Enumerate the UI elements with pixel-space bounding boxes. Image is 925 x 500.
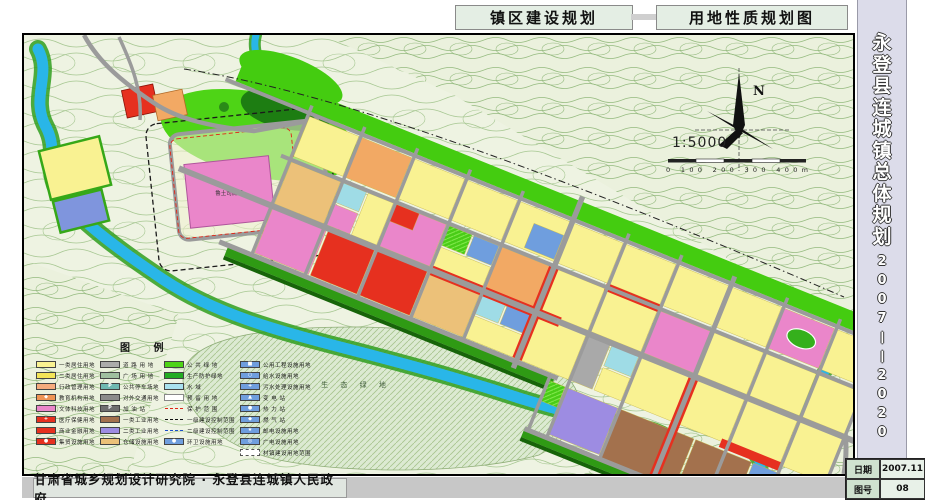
legend-swatch xyxy=(36,383,56,390)
legend-item: +污水处理设施用地 xyxy=(240,381,311,392)
scale-text: 1:5000 xyxy=(672,135,727,151)
legend-swatch xyxy=(164,361,184,368)
legend-swatch xyxy=(164,427,184,434)
legend-label: 一类工业用地 xyxy=(123,416,159,424)
sidebar-title: 永登县连城镇总体规划 xyxy=(858,0,906,248)
legend-item: 村镇建设用地范围 xyxy=(240,447,311,458)
legend-swatch xyxy=(100,438,120,445)
legend-swatch xyxy=(36,361,56,368)
sidebar-title-char: 县 xyxy=(858,76,906,98)
legend-swatch xyxy=(36,405,56,412)
legend-label: 二类居住用地 xyxy=(59,372,95,380)
legend-item: 道 路 用 地 xyxy=(100,359,159,370)
legend-swatch: ● xyxy=(164,438,184,445)
legend-swatch xyxy=(100,361,120,368)
legend-swatch-icon: + xyxy=(44,417,48,422)
legend-label: 公用工程设施用地 xyxy=(263,361,311,369)
legend-item: 预 留 用 地 xyxy=(164,392,235,403)
legend-item: 生产防护绿地 xyxy=(164,370,235,381)
legend-item: ●环卫设施用地 xyxy=(164,436,235,447)
legend-swatch-icon: ○ xyxy=(248,373,252,378)
sidebar-title-char: 永 xyxy=(858,33,906,55)
footer-credit: 甘肃省城乡规划设计研究院 · 永登县连城镇人民政府 xyxy=(33,478,347,498)
legend-label: 保 护 范 围 xyxy=(187,405,218,413)
legend-swatch-icon: ◆ xyxy=(44,395,48,400)
header-title-right: 用地性质规划图 xyxy=(656,5,848,30)
legend-swatch xyxy=(36,427,56,434)
legend-label: 燃 气 站 xyxy=(263,416,286,424)
legend-swatch xyxy=(164,405,184,412)
sidebar-title-char: 体 xyxy=(858,184,906,206)
sidebar-year-char: 0 xyxy=(858,423,906,442)
legend-label: 广 场 用 地 xyxy=(123,372,154,380)
legend-swatch: + xyxy=(240,383,260,390)
footer-bar: 甘肃省城乡规划设计研究院 · 永登县连城镇人民政府 xyxy=(22,477,845,498)
legend-item: 公 共 绿 地 xyxy=(164,359,235,370)
sidebar-title-strip: 永登县连城镇总体规划 2007——2020 xyxy=(857,0,907,458)
legend-item: 二类工业用地 xyxy=(100,425,159,436)
sidebar-title-char: 镇 xyxy=(858,141,906,163)
legend-label: 污水处理设施用地 xyxy=(263,383,311,391)
legend-item: 对外交通用地 xyxy=(100,392,159,403)
legend-swatch: ◎ xyxy=(240,438,260,445)
sidebar-year-char: 0 xyxy=(858,271,906,290)
legend-swatch: ▲ xyxy=(240,394,260,401)
legend-swatch xyxy=(100,372,120,379)
legend-label: 环卫设施用地 xyxy=(187,438,223,446)
sidebar-title-char: 划 xyxy=(858,227,906,249)
legend-label: 商业金融用地 xyxy=(59,427,95,435)
sidebar-year-char: — xyxy=(873,333,892,381)
legend-swatch-icon: ■ xyxy=(248,362,253,367)
legend-label: 一级建设控制范围 xyxy=(187,416,235,424)
legend-swatch: P xyxy=(100,383,120,390)
legend-swatch-icon: P xyxy=(108,406,112,411)
sidebar-years: 2007——2020 xyxy=(858,248,906,442)
legend-label: 水 域 xyxy=(187,383,201,391)
legend-label: 变 电 站 xyxy=(263,394,286,402)
sidebar-title-char: 规 xyxy=(858,205,906,227)
legend-swatch-icon: ▲ xyxy=(248,395,252,400)
legend-item: P公共停车场地 xyxy=(100,381,159,392)
legend-item: 广 场 用 地 xyxy=(100,370,159,381)
legend-swatch-icon: ★ xyxy=(248,428,252,433)
legend-swatch-icon: ● xyxy=(172,439,176,444)
map-canvas: 鲁土司衙门 xyxy=(22,33,855,476)
legend-item: 一类工业用地 xyxy=(100,414,159,425)
sidebar-title-char: 总 xyxy=(858,162,906,184)
legend-swatch xyxy=(164,394,184,401)
legend-item: ●热 力 站 xyxy=(240,403,311,414)
legend-item: ◆燃 气 站 xyxy=(240,414,311,425)
legend-item: ★邮电设施用地 xyxy=(240,425,311,436)
legend: 图 例 一类居住用地二类居住用地行政管理用地◆教育机构用地文体科技用地+医疗保健… xyxy=(36,339,312,458)
legend-swatch xyxy=(240,449,260,456)
legend-item: 一级建设控制范围 xyxy=(164,414,235,425)
eco-green-label: 生 态 绿 地 xyxy=(321,380,391,389)
legend-label: 对外交通用地 xyxy=(123,394,159,402)
sheet-number-value: 08 xyxy=(880,479,925,499)
legend-swatch: P xyxy=(100,405,120,412)
legend-swatch: ■ xyxy=(240,361,260,368)
legend-label: 广电设施用地 xyxy=(263,438,299,446)
legend-item: ○给水设施用地 xyxy=(240,370,311,381)
legend-swatch: ★ xyxy=(240,427,260,434)
title-block: 日期 2007.11 图号 08 xyxy=(845,458,925,500)
legend-item: 仓储设施用地 xyxy=(100,436,159,447)
north-label: N xyxy=(753,84,765,99)
sidebar-title-char: 登 xyxy=(858,55,906,77)
legend-swatch-icon: ◆ xyxy=(248,417,252,422)
date-value: 2007.11 xyxy=(880,459,925,479)
legend-label: 村镇建设用地范围 xyxy=(263,449,311,457)
legend-label: 生产防护绿地 xyxy=(187,372,223,380)
sidebar-year-char: 0 xyxy=(858,290,906,309)
legend-swatch xyxy=(100,427,120,434)
legend-swatch-icon: ◎ xyxy=(248,439,252,444)
legend-swatch-icon: + xyxy=(248,384,252,389)
sidebar-year-char: 2 xyxy=(858,404,906,423)
legend-swatch: ○ xyxy=(240,372,260,379)
legend-item: ◆教育机构用地 xyxy=(36,392,95,403)
legend-item: 保 护 范 围 xyxy=(164,403,235,414)
legend-label: 热 力 站 xyxy=(263,405,286,413)
legend-item: ▲变 电 站 xyxy=(240,392,311,403)
legend-label: 二类工业用地 xyxy=(123,427,159,435)
legend-item: 二类居住用地 xyxy=(36,370,95,381)
legend-label: 加 油 站 xyxy=(123,405,146,413)
sidebar-year-char: 0 xyxy=(858,385,906,404)
sidebar-title-char: 城 xyxy=(858,119,906,141)
sidebar-year-char: 2 xyxy=(858,252,906,271)
legend-swatch: ● xyxy=(240,405,260,412)
legend-item: +医疗保健用地 xyxy=(36,414,95,425)
header-title-right-text: 用地性质规划图 xyxy=(689,7,815,28)
legend-label: 公 共 绿 地 xyxy=(187,361,218,369)
legend-label: 行政管理用地 xyxy=(59,383,95,391)
plan-sheet: 镇区建设规划 用地性质规划图 永登县连城镇总体规划 2007——2020 xyxy=(0,0,925,500)
legend-swatch-icon: P xyxy=(108,384,112,389)
legend-swatch xyxy=(164,383,184,390)
legend-item: ●集贸设施用地 xyxy=(36,436,95,447)
legend-item: 商业金融用地 xyxy=(36,425,95,436)
legend-item: ■公用工程设施用地 xyxy=(240,359,311,370)
header-connector xyxy=(631,14,656,20)
legend-swatch: ● xyxy=(36,438,56,445)
legend-label: 二级建设控制范围 xyxy=(187,427,235,435)
legend-item: 二级建设控制范围 xyxy=(164,425,235,436)
legend-label: 仓储设施用地 xyxy=(123,438,159,446)
legend-label: 公共停车场地 xyxy=(123,383,159,391)
legend-swatch xyxy=(100,416,120,423)
sheet-number-label: 图号 xyxy=(846,479,880,499)
legend-swatch: ◆ xyxy=(240,416,260,423)
legend-item: 文体科技用地 xyxy=(36,403,95,414)
legend-label: 一类居住用地 xyxy=(59,361,95,369)
legend-swatch xyxy=(36,372,56,379)
legend-swatch xyxy=(164,416,184,423)
legend-item: 行政管理用地 xyxy=(36,381,95,392)
legend-swatch: + xyxy=(36,416,56,423)
legend-label: 道 路 用 地 xyxy=(123,361,154,369)
legend-swatch-icon: ● xyxy=(248,406,252,411)
header-title-left-text: 镇区建设规划 xyxy=(490,7,598,28)
legend-swatch-icon: ● xyxy=(44,439,48,444)
legend-label: 教育机构用地 xyxy=(59,394,95,402)
header-title-left: 镇区建设规划 xyxy=(455,5,633,30)
legend-item: ◎广电设施用地 xyxy=(240,436,311,447)
legend-label: 集贸设施用地 xyxy=(59,438,95,446)
sidebar-title-char: 连 xyxy=(858,98,906,120)
legend-swatch xyxy=(164,372,184,379)
legend-swatch: ◆ xyxy=(36,394,56,401)
legend-title: 图 例 xyxy=(120,339,312,354)
legend-item: 一类居住用地 xyxy=(36,359,95,370)
legend-label: 给水设施用地 xyxy=(263,372,299,380)
legend-label: 邮电设施用地 xyxy=(263,427,299,435)
legend-item: P加 油 站 xyxy=(100,403,159,414)
date-label: 日期 xyxy=(846,459,880,479)
legend-label: 文体科技用地 xyxy=(59,405,95,413)
legend-columns: 一类居住用地二类居住用地行政管理用地◆教育机构用地文体科技用地+医疗保健用地商业… xyxy=(36,359,312,458)
legend-item: 水 域 xyxy=(164,381,235,392)
legend-label: 预 留 用 地 xyxy=(187,394,218,402)
legend-swatch xyxy=(100,394,120,401)
legend-label: 医疗保健用地 xyxy=(59,416,95,424)
